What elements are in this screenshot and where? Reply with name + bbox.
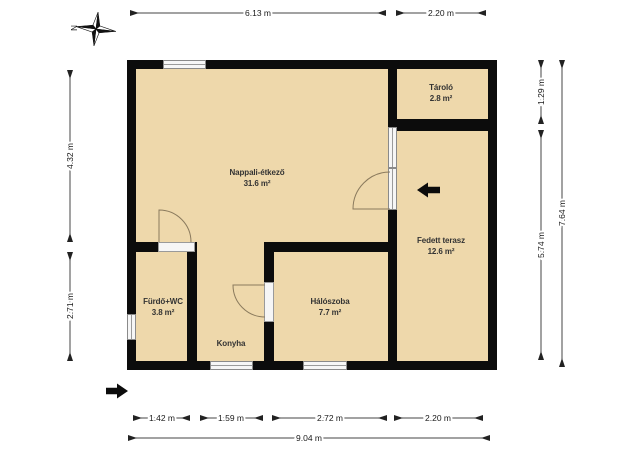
- compass-north-label: N: [70, 25, 79, 31]
- floor-plan: Nappali-étkező 31.6 m² Tároló 2.8 m² Fed…: [0, 0, 636, 450]
- terasz-entry-arrow-icon: [417, 183, 440, 198]
- dimension-right-tarolo: 1.29 m: [536, 60, 546, 124]
- dimension-value: 7.64 m: [557, 200, 567, 226]
- dimension-value: 2.72 m: [317, 413, 343, 423]
- dimension-value: 1.29 m: [536, 79, 546, 105]
- dimension-bottom-konyha: 1.59 m: [200, 413, 263, 423]
- dimension-value: 1.42 m: [149, 413, 175, 423]
- dimension-right-terasz: 5.74 m: [536, 130, 546, 360]
- dimension-value: 5.74 m: [536, 232, 546, 258]
- dimension-value: 9.04 m: [296, 433, 322, 443]
- main-entry-arrow-icon: [106, 384, 128, 399]
- compass-rose-icon: N: [70, 10, 118, 49]
- door-arc-terasz: [353, 172, 390, 209]
- dimension-value: 6.13 m: [245, 8, 271, 18]
- door-arc-furdo: [159, 210, 191, 242]
- dimension-bottom-halo: 2.72 m: [272, 413, 387, 423]
- dimension-right-total: 7.64 m: [557, 60, 567, 367]
- dimension-left-upper: 4.32 m: [65, 70, 75, 242]
- dimension-bottom-total: 9.04 m: [128, 433, 490, 443]
- plan-overlay: N 6.13 m 2.20 m 4.32 m 2.71 m: [0, 0, 636, 450]
- dimension-top-main: 6.13 m: [130, 8, 386, 18]
- dimension-top-right: 2.20 m: [396, 8, 486, 18]
- dimension-value: 2.20 m: [428, 8, 454, 18]
- dimension-value: 2.71 m: [65, 293, 75, 319]
- dimension-bottom-furdo: 1.42 m: [133, 413, 190, 423]
- dimension-value: 4.32 m: [65, 143, 75, 169]
- dimension-left-lower: 2.71 m: [65, 252, 75, 361]
- door-arc-haloszoba: [233, 285, 265, 317]
- dimension-value: 1.59 m: [218, 413, 244, 423]
- dimension-bottom-terasz: 2.20 m: [394, 413, 483, 423]
- dimension-value: 2.20 m: [425, 413, 451, 423]
